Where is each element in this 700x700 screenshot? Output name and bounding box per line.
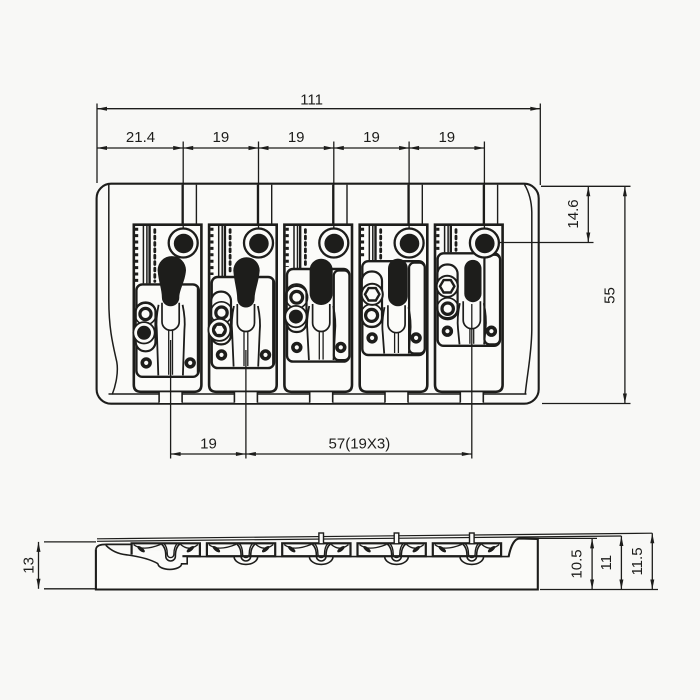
svg-text:19: 19	[288, 129, 305, 146]
svg-text:19: 19	[200, 436, 217, 453]
svg-text:13: 13	[21, 557, 38, 574]
svg-text:57(19X3): 57(19X3)	[329, 436, 391, 453]
svg-text:11: 11	[598, 555, 615, 571]
svg-text:11.5: 11.5	[629, 547, 646, 575]
svg-text:14.6: 14.6	[565, 199, 582, 228]
svg-text:55: 55	[602, 287, 619, 304]
svg-text:19: 19	[363, 129, 380, 146]
svg-text:21.4: 21.4	[126, 129, 155, 146]
svg-text:19: 19	[438, 129, 455, 146]
svg-text:111: 111	[300, 92, 323, 109]
svg-text:19: 19	[213, 129, 230, 146]
svg-text:10.5: 10.5	[569, 549, 586, 578]
